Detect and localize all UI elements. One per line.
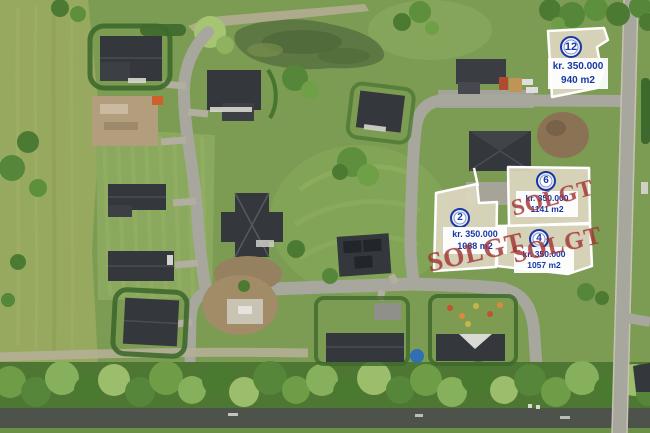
house-left-lower (108, 251, 174, 281)
lot-12-area-size: 940 m2 (551, 74, 605, 88)
lot-12-price-box[interactable]: kr. 350.000 940 m2 (548, 58, 608, 89)
meadow-left (0, 0, 100, 365)
construction-site-1 (92, 96, 163, 146)
house-solar (337, 233, 392, 277)
house-hip-roof (469, 131, 531, 171)
lot-12-number: 12 (565, 42, 577, 53)
tree (216, 36, 234, 54)
house-bottom-right (430, 296, 516, 364)
dirt-pile (537, 112, 589, 158)
lot-6-number: 6 (543, 176, 549, 186)
lot-12-price: kr. 350.000 (551, 60, 605, 74)
aerial-lot-map: 12 kr. 350.000 940 m2 2 kr. 350.000 1068… (0, 0, 650, 433)
lot-2-number: 2 (457, 213, 463, 223)
main-road-bottom (0, 404, 650, 433)
lot-12-number-badge[interactable]: 12 (560, 36, 582, 58)
tree-band-bottom (0, 361, 650, 412)
dirt-pile-shadow (546, 120, 566, 136)
lot-2-number-badge[interactable]: 2 (450, 208, 470, 228)
